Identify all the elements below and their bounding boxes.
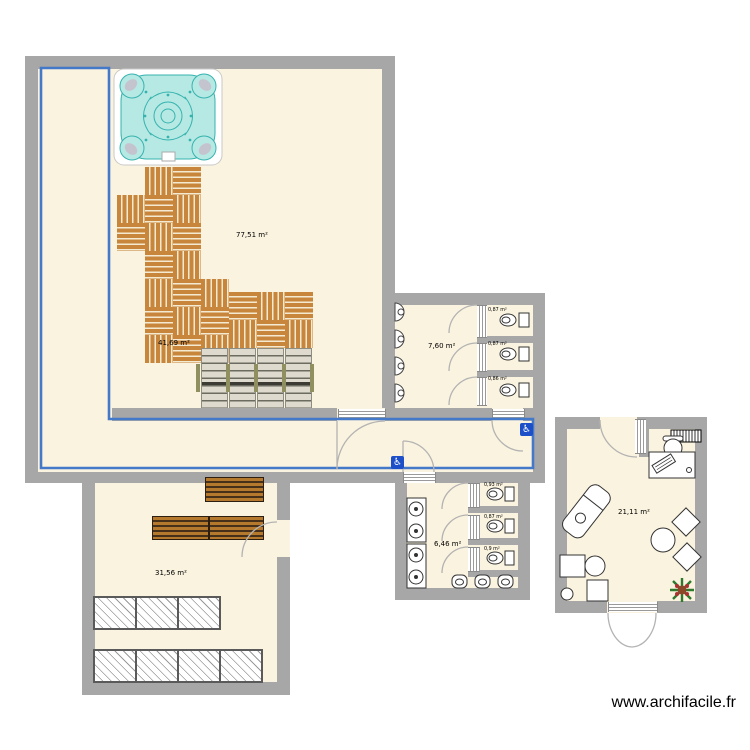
door-leaf[interactable] bbox=[468, 483, 480, 508]
door-opening[interactable] bbox=[600, 417, 637, 429]
sun-lounger[interactable] bbox=[201, 348, 228, 410]
wood-deck-tile[interactable] bbox=[117, 223, 145, 251]
wood-deck-tile[interactable] bbox=[173, 251, 201, 279]
stall-area-label: 0,87 m² bbox=[488, 342, 507, 347]
wood-deck-tile[interactable] bbox=[145, 223, 173, 251]
lounger-side-table[interactable] bbox=[226, 364, 230, 392]
lounger-side-table[interactable] bbox=[196, 364, 200, 392]
wood-deck-tile[interactable] bbox=[229, 292, 257, 320]
door-leaf[interactable] bbox=[635, 419, 646, 454]
room-area-label-pool-hall: 77,51 m² bbox=[236, 232, 268, 239]
wall[interactable] bbox=[277, 483, 290, 523]
locker-cabinet[interactable] bbox=[135, 649, 179, 683]
locker-cabinet[interactable] bbox=[93, 596, 137, 630]
room-area-label-office: 21,11 m² bbox=[618, 509, 650, 516]
wall[interactable] bbox=[25, 56, 395, 69]
lounger-side-table[interactable] bbox=[310, 364, 314, 392]
bench[interactable] bbox=[205, 477, 264, 502]
lounger-side-table[interactable] bbox=[282, 364, 286, 392]
door-opening[interactable] bbox=[277, 520, 290, 557]
wall[interactable] bbox=[533, 293, 545, 420]
wood-deck-tile[interactable] bbox=[145, 195, 173, 223]
door-leaf[interactable] bbox=[468, 547, 480, 572]
door-leaf[interactable] bbox=[477, 305, 487, 338]
wood-deck-tile[interactable] bbox=[173, 223, 201, 251]
door-leaf[interactable] bbox=[468, 515, 480, 540]
locker-cabinet[interactable] bbox=[93, 649, 137, 683]
sun-lounger[interactable] bbox=[285, 348, 312, 410]
stall-area-label: 0,9 m² bbox=[484, 547, 500, 552]
wood-deck-tile[interactable] bbox=[201, 307, 229, 335]
locker-cabinet[interactable] bbox=[219, 649, 263, 683]
sun-lounger[interactable] bbox=[257, 348, 284, 410]
wall[interactable] bbox=[695, 417, 707, 613]
room-area-label-walkway: 41,69 m² bbox=[158, 340, 190, 347]
wood-deck-tile[interactable] bbox=[173, 279, 201, 307]
room-area-label-changing-room: 31,56 m² bbox=[155, 570, 187, 577]
room-area-label-wc-bottom: 6,46 m² bbox=[434, 541, 461, 548]
door-leaf[interactable] bbox=[608, 602, 658, 612]
door-leaf[interactable] bbox=[403, 472, 436, 483]
door-leaf[interactable] bbox=[477, 343, 487, 372]
locker-cabinet[interactable] bbox=[177, 596, 221, 630]
door-leaf[interactable] bbox=[477, 377, 487, 406]
wood-deck-tile[interactable] bbox=[145, 307, 173, 335]
locker-cabinet[interactable] bbox=[135, 596, 179, 630]
locker-cabinet[interactable] bbox=[177, 649, 221, 683]
wood-deck-tile[interactable] bbox=[257, 320, 285, 348]
wheelchair-accessible-icon[interactable]: ♿ bbox=[520, 423, 533, 436]
wall[interactable] bbox=[25, 472, 545, 483]
wall[interactable] bbox=[382, 56, 395, 421]
door-leaf[interactable] bbox=[338, 409, 386, 420]
floor-plan-canvas[interactable]: 77,51 m² 41,69 m² 7,60 m² 6,46 m² 21,11 … bbox=[0, 0, 750, 750]
wall[interactable] bbox=[382, 293, 545, 305]
wood-deck-tile[interactable] bbox=[285, 292, 313, 320]
room-wc-right[interactable] bbox=[395, 305, 533, 408]
stall-area-label: 0,86 m² bbox=[488, 377, 507, 382]
wood-deck-tile[interactable] bbox=[173, 307, 201, 335]
wood-deck-tile[interactable] bbox=[117, 195, 145, 223]
wall[interactable] bbox=[25, 56, 38, 483]
stall-area-label: 0,87 m² bbox=[488, 308, 507, 313]
door-leaf[interactable] bbox=[492, 409, 525, 420]
wall[interactable] bbox=[395, 588, 530, 600]
wood-deck-tile[interactable] bbox=[173, 167, 201, 195]
lounger-side-table[interactable] bbox=[254, 364, 258, 392]
wall[interactable] bbox=[277, 557, 290, 695]
wood-deck-tile[interactable] bbox=[145, 167, 173, 195]
room-walkway-corridor[interactable] bbox=[38, 419, 533, 472]
wood-deck-tile[interactable] bbox=[145, 279, 173, 307]
wood-deck-tile[interactable] bbox=[229, 320, 257, 348]
bench[interactable] bbox=[152, 516, 209, 540]
bench[interactable] bbox=[209, 516, 264, 540]
stall-area-label: 0,93 m² bbox=[484, 483, 503, 488]
wall[interactable] bbox=[395, 483, 407, 600]
wall[interactable] bbox=[82, 682, 290, 695]
archifacile-watermark: www.archifacile.fr bbox=[612, 694, 736, 712]
wood-deck-tile[interactable] bbox=[145, 251, 173, 279]
wood-deck-tile[interactable] bbox=[173, 195, 201, 223]
wood-deck-tile[interactable] bbox=[201, 279, 229, 307]
sun-lounger[interactable] bbox=[229, 348, 256, 410]
wood-deck-tile[interactable] bbox=[257, 292, 285, 320]
wood-deck-tile[interactable] bbox=[285, 320, 313, 348]
stall-area-label: 0,87 m² bbox=[484, 515, 503, 520]
wall[interactable] bbox=[555, 417, 567, 613]
wheelchair-accessible-icon[interactable]: ♿ bbox=[391, 456, 404, 469]
room-area-label-wc-right: 7,60 m² bbox=[428, 343, 455, 350]
